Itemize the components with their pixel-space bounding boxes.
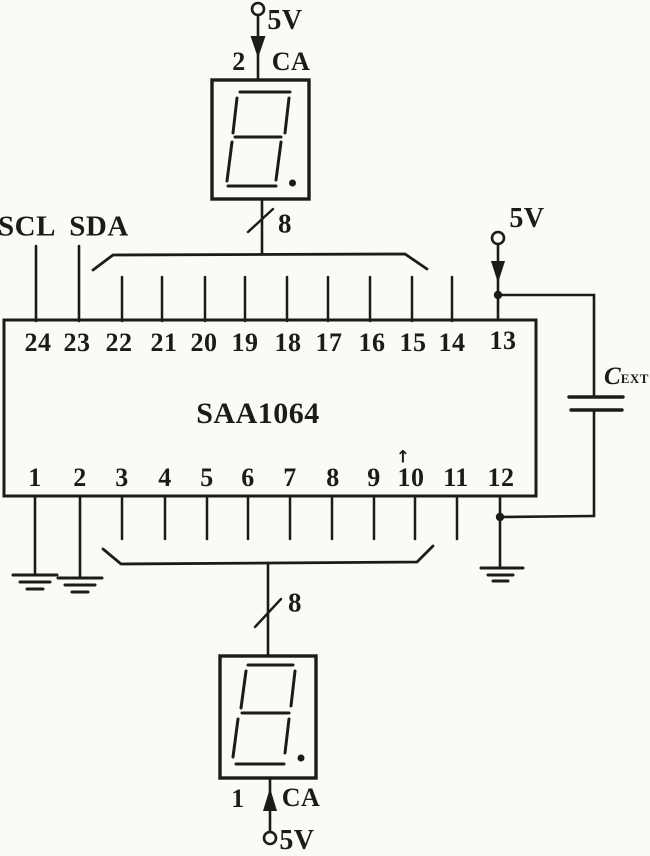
power-terminal-icon [252,3,264,15]
decimal-point [289,180,296,187]
ic-pin-label-5: 5 [200,465,214,491]
pin2-ground-net [58,496,102,592]
ic-pin-label-3: 3 [115,465,129,491]
ic-pin-label-19: 19 [232,330,259,356]
bottom-supply-net [263,778,277,844]
ic-pin-label-23: 23 [64,330,91,356]
bottom-display-ca-label: CA [282,785,321,811]
ic-pin-label-24: 24 [25,330,52,356]
ic-pin-label-11: 11 [443,465,469,491]
top-display-ca-label: CA [272,49,311,75]
arrow-down-icon [251,36,266,58]
pin12-ground-net [481,496,594,581]
schematic-artwork [0,0,650,856]
schematic-canvas: 5V 2 CA SCL SDA 8 5V CEXT SAA1064 24 23 … [0,0,650,856]
pin10-arrow-mark: ↑ [396,450,410,467]
decimal-point [298,755,305,762]
ic-pin-label-20: 20 [191,330,218,356]
ic-pin-label-14: 14 [439,330,466,356]
bottom-bus-width-label: 8 [288,590,302,617]
ic-pin-label-9: 9 [367,465,381,491]
ic-part-number: SAA1064 [196,399,320,429]
top-pin-stubs [122,277,452,321]
seven-segment-display-top [212,80,309,199]
pin-bundle-brace [103,546,433,564]
ic-pin-label-22: 22 [106,330,133,356]
power-terminal-icon [492,232,504,244]
ground-icon [481,568,523,581]
pin-bundle-brace [93,254,427,270]
seven-segment-display-bottom [220,656,316,778]
ic-pin-label-16: 16 [359,330,386,356]
scl-label: SCL [0,213,56,242]
right-supply-label: 5V [509,205,544,233]
ic-pin-label-2: 2 [73,465,87,491]
ic-pin-label-18: 18 [275,330,302,356]
bottom-supply-label: 5V [279,827,314,855]
capacitor-name: C [604,363,621,391]
bottom-pin-stubs [122,496,457,539]
ic-pin-label-1: 1 [28,465,42,491]
ic-pin-label-10: 10 [398,465,425,491]
bottom-bus [103,546,433,656]
ground-icon [58,578,102,592]
ic-pin-label-4: 4 [158,465,172,491]
digit-eight [227,92,290,186]
top-bus [93,199,427,270]
top-display-pin-label: 2 [232,49,246,75]
ic-pin-label-12: 12 [488,465,515,491]
ic-pin-label-13: 13 [490,328,517,354]
capacitor-icon [569,397,623,516]
ic-pin-label-8: 8 [326,465,340,491]
bus-slash [248,209,273,232]
ic-pin-label-21: 21 [151,330,178,356]
sda-label: SDA [69,213,129,242]
pin1-ground-net [13,496,57,589]
capacitor-label: CEXT [604,363,649,391]
top-bus-width-label: 8 [278,211,292,238]
arrow-down-icon [491,261,505,283]
ic-pin-label-15: 15 [400,330,427,356]
bottom-display-pin-label: 1 [231,786,245,812]
arrow-up-icon [263,788,277,811]
ground-icon [13,575,57,589]
wire [500,516,594,517]
power-terminal-icon [264,832,276,844]
top-supply-net [251,3,266,80]
ic-pin-label-6: 6 [241,465,255,491]
digit-eight [233,665,295,764]
top-supply-label: 5V [267,7,302,35]
ic-pin-label-17: 17 [316,330,343,356]
ic-pin-label-7: 7 [283,465,297,491]
capacitor-subscript: EXT [621,371,649,387]
pin13-supply-net [491,232,594,396]
